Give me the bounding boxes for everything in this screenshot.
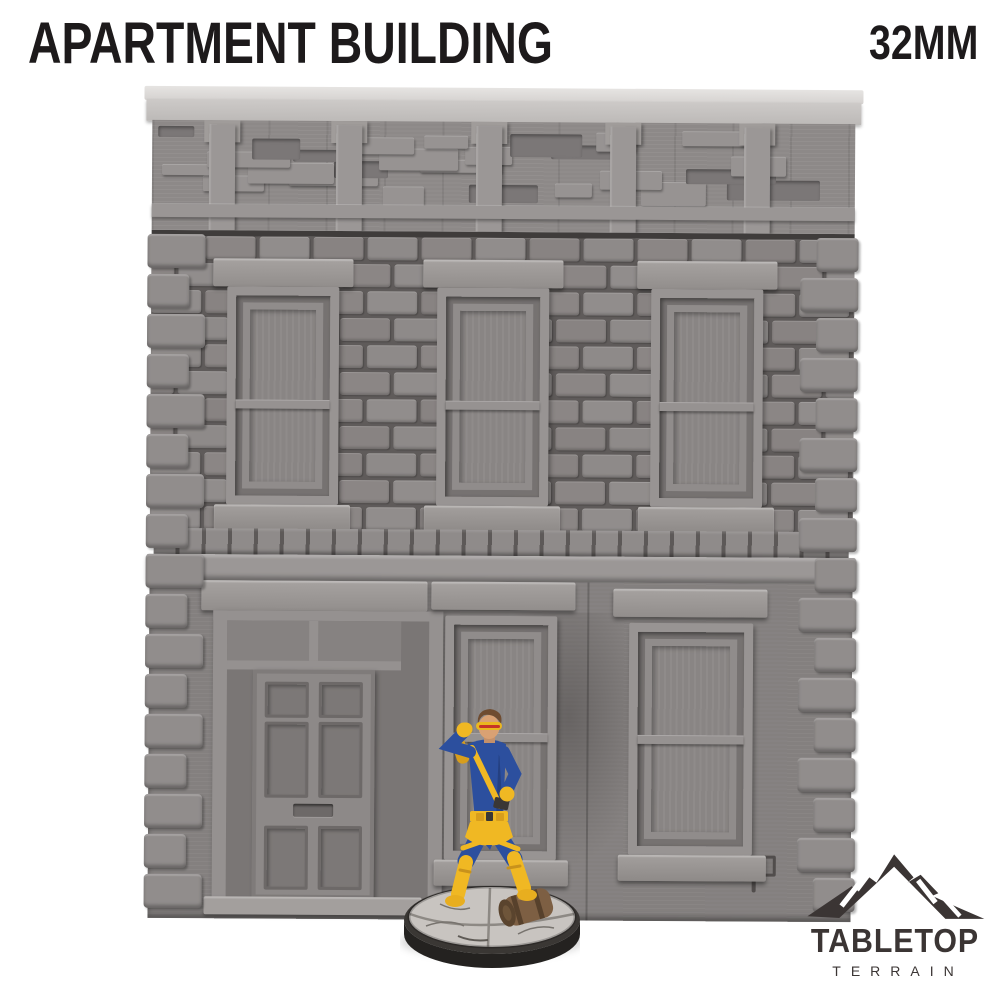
quoin-stone — [145, 634, 203, 668]
quoin-stone — [798, 678, 856, 712]
brick — [366, 399, 416, 422]
brick — [367, 345, 417, 368]
upper-window-3-lintel — [637, 261, 777, 290]
ground-window-1-lintel — [431, 582, 575, 611]
brick — [367, 291, 417, 314]
upper-window-1-sill — [214, 504, 350, 531]
quoin-stone — [147, 354, 189, 388]
transom-mullion — [309, 621, 318, 661]
quoin-stone — [145, 594, 187, 628]
brick — [583, 292, 633, 315]
quoin-stone — [145, 674, 187, 708]
quoin-stone — [797, 758, 855, 792]
ground-window-2 — [628, 623, 753, 856]
window-sash — [242, 302, 323, 488]
brick — [366, 507, 416, 530]
brick — [745, 239, 795, 262]
brick — [259, 237, 309, 260]
window-recess — [637, 632, 744, 847]
parapet-block — [555, 183, 592, 197]
miniature-base — [404, 886, 580, 968]
quoin-stone — [799, 438, 857, 472]
brick — [556, 373, 606, 396]
miniature-figure — [400, 698, 580, 968]
door-threshold — [203, 896, 421, 915]
door-panel — [264, 722, 308, 798]
window-rail — [638, 735, 744, 745]
brick — [421, 238, 471, 261]
quoin-stone — [814, 638, 856, 672]
door-panel — [265, 682, 309, 718]
window-sash — [666, 305, 747, 491]
quoin-stone — [146, 434, 188, 468]
window-rail — [446, 401, 540, 411]
quoin-stone — [815, 398, 857, 432]
figure-body — [445, 709, 537, 907]
scale-badge: 32MM — [869, 16, 978, 71]
door-leaf — [252, 669, 375, 899]
brick — [340, 372, 390, 395]
brick — [555, 427, 605, 450]
quoin-stone — [798, 598, 856, 632]
parapet-block — [424, 136, 468, 149]
quoin-stone — [145, 554, 203, 588]
upper-window-3 — [650, 289, 763, 508]
quoin-stone — [813, 798, 855, 832]
door-panel — [319, 682, 363, 718]
page-root: { "header": { "title": "APARTMENT BUILDI… — [0, 0, 1000, 1000]
mountain-logo-icon — [795, 842, 995, 926]
quoin-stone — [799, 518, 857, 552]
window-rail — [660, 402, 754, 412]
quoin-column-left — [143, 234, 207, 916]
parapet-block — [510, 134, 582, 157]
window-recess — [659, 298, 754, 499]
quoin-stone — [147, 234, 205, 268]
upper-window-1-lintel — [213, 258, 353, 287]
brick — [205, 236, 255, 259]
upper-window-2-sill — [424, 506, 560, 533]
quoin-stone — [815, 478, 857, 512]
brick — [339, 480, 389, 503]
window-sash — [452, 304, 533, 490]
door-lintel — [201, 580, 427, 611]
window-recess — [235, 295, 330, 496]
quoin-stone — [144, 754, 186, 788]
brick — [556, 319, 606, 342]
mail-slot — [293, 804, 333, 817]
quoin-stone — [147, 314, 205, 348]
brick — [313, 237, 363, 260]
ground-window-2-sill — [618, 855, 766, 882]
brick — [556, 265, 606, 288]
upper-window-2 — [436, 288, 549, 507]
quoin-stone — [146, 474, 204, 508]
quoin-stone — [813, 718, 855, 752]
quoin-stone — [147, 274, 189, 308]
brick — [339, 426, 389, 449]
brick — [582, 400, 632, 423]
quoin-stone — [145, 714, 203, 748]
quoin-stone — [816, 238, 858, 272]
quoin-stone — [146, 514, 188, 548]
quoin-column-right — [794, 238, 858, 920]
brand-logo: TABLETOP TERRAIN — [790, 842, 1000, 979]
brick — [340, 318, 390, 341]
brand-subname: TERRAIN — [796, 963, 1000, 979]
window-recess — [445, 297, 540, 498]
quoin-stone — [144, 874, 202, 908]
quoin-stone — [800, 278, 858, 312]
product-title: APARTMENT BUILDING — [28, 10, 553, 77]
brick — [583, 238, 633, 261]
brick — [366, 453, 416, 476]
brick — [475, 238, 525, 261]
brick — [555, 481, 605, 504]
quoin-stone — [146, 394, 204, 428]
upper-window-3-sill — [638, 507, 774, 534]
brick — [582, 454, 632, 477]
quoin-stone — [144, 834, 186, 868]
brick — [582, 508, 632, 531]
brand-name: TABLETOP — [798, 922, 991, 960]
upper-window-1 — [226, 286, 339, 505]
door-panel — [318, 826, 362, 890]
upper-window-2-lintel — [423, 260, 563, 289]
quoin-stone — [816, 318, 858, 352]
brick — [583, 346, 633, 369]
brick — [367, 237, 417, 260]
quoin-stone — [800, 358, 858, 392]
quoin-stone — [814, 558, 856, 592]
brick — [691, 239, 741, 262]
quoin-stone — [144, 794, 202, 828]
door-panel — [264, 826, 308, 890]
parapet-block — [158, 126, 194, 137]
ground-window-2-lintel — [613, 589, 767, 618]
brick — [637, 239, 687, 262]
brick — [529, 238, 579, 261]
parapet-block — [252, 138, 300, 159]
window-rail — [236, 399, 330, 409]
door-panel — [318, 722, 362, 798]
